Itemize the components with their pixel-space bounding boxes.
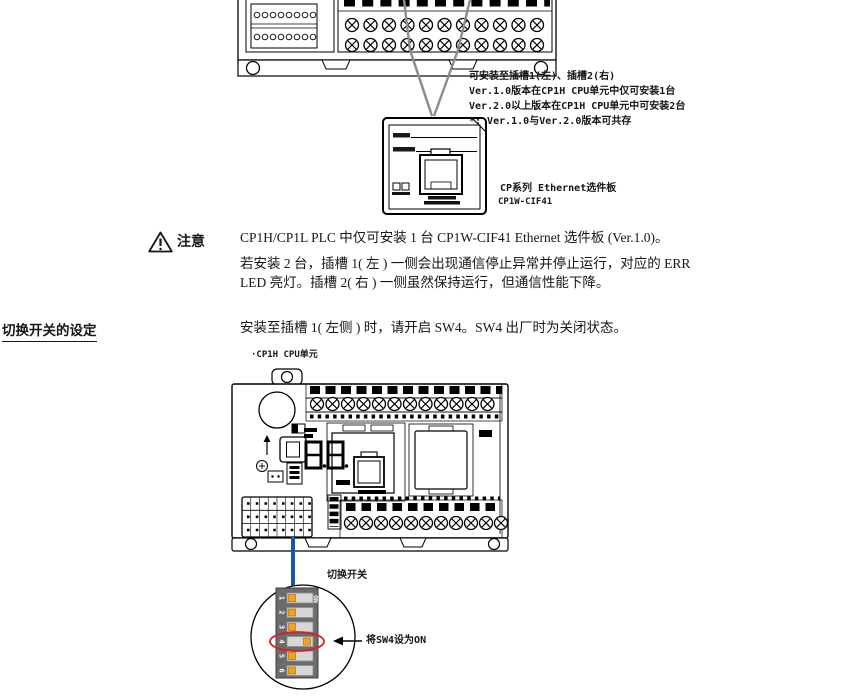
dip-handle-4 [304, 638, 311, 645]
dip-num-4: 4 [278, 639, 286, 643]
switch-setting-body: 安装至插槽 1( 左侧 ) 时，请开启 SW4。SW4 出厂时为关闭状态。 [240, 319, 627, 338]
slot-note-line-2: Ver.1.0版本在CP1H CPU单元中仅可安装1台 [469, 85, 675, 100]
plc-bottom-view-diagram [238, 0, 556, 76]
dip-handle-3 [289, 624, 296, 631]
warning-triangle-icon [149, 233, 172, 252]
terminal-screw-row [345, 517, 508, 530]
cp1h-cpu-unit-diagram [232, 369, 508, 551]
dip-on-label: ON [312, 595, 320, 603]
figure-canvas: 1 2 3 4 5 6 ON [0, 0, 868, 696]
caution-paragraph-2-line-2: LED 亮灯。插槽 2( 右 ) 一侧虽然保持运行，但通信性能下降。 [240, 274, 609, 293]
slot-note-line-4: *: Ver.1.0与Ver.2.0版本可共存 [469, 115, 631, 130]
dip-num-1: 1 [278, 596, 286, 600]
unit-label: ·CP1H CPU单元 [251, 347, 318, 360]
caution-label: 注意 [177, 231, 205, 251]
terminal-screw-row [346, 39, 544, 52]
switch-label: 切换开关 [327, 569, 367, 584]
board-caption-line-2: CP1W-CIF41 [498, 197, 552, 207]
slot-note-line-1: 可安装至插槽1(左)、插槽2(右) [469, 70, 615, 85]
caution-paragraph-1: CP1H/CP1L PLC 中仅可安装 1 台 CP1W-CIF41 Ether… [240, 229, 669, 248]
sw4-arrow-note: 将SW4设为ON [366, 634, 426, 649]
dip-num-2: 2 [278, 610, 286, 614]
dip-num-3: 3 [278, 625, 286, 629]
terminal-screw-row [346, 19, 544, 32]
dip-handle-1 [289, 595, 296, 602]
dip-handle-5 [289, 653, 296, 660]
dip-num-6: 6 [278, 668, 286, 672]
slot-note-line-3: Ver.2.0以上版本在CP1H CPU单元中可安装2台 [469, 100, 685, 115]
board-caption-line-1: CP系列 Ethernet选件板 [500, 182, 616, 197]
dip-num-5: 5 [278, 654, 286, 658]
section-heading: 切换开关的设定 [2, 319, 97, 342]
manual-page: 1 2 3 4 5 6 ON 可安装至插槽1(左)、插槽2(右) Ver.1.0… [0, 0, 868, 696]
rj45-jack-icon [420, 149, 462, 194]
caution-paragraph-2-line-1: 若安装 2 台，插槽 1( 左 ) 一侧会出现通信停止异常并停止运行，对应的 E… [240, 255, 690, 274]
dip-handle-6 [289, 667, 296, 674]
dip-switch-detail-circle: 1 2 3 4 5 6 ON [251, 585, 355, 689]
dip-handle-2 [289, 609, 296, 616]
ethernet-board-diagram [383, 118, 486, 214]
